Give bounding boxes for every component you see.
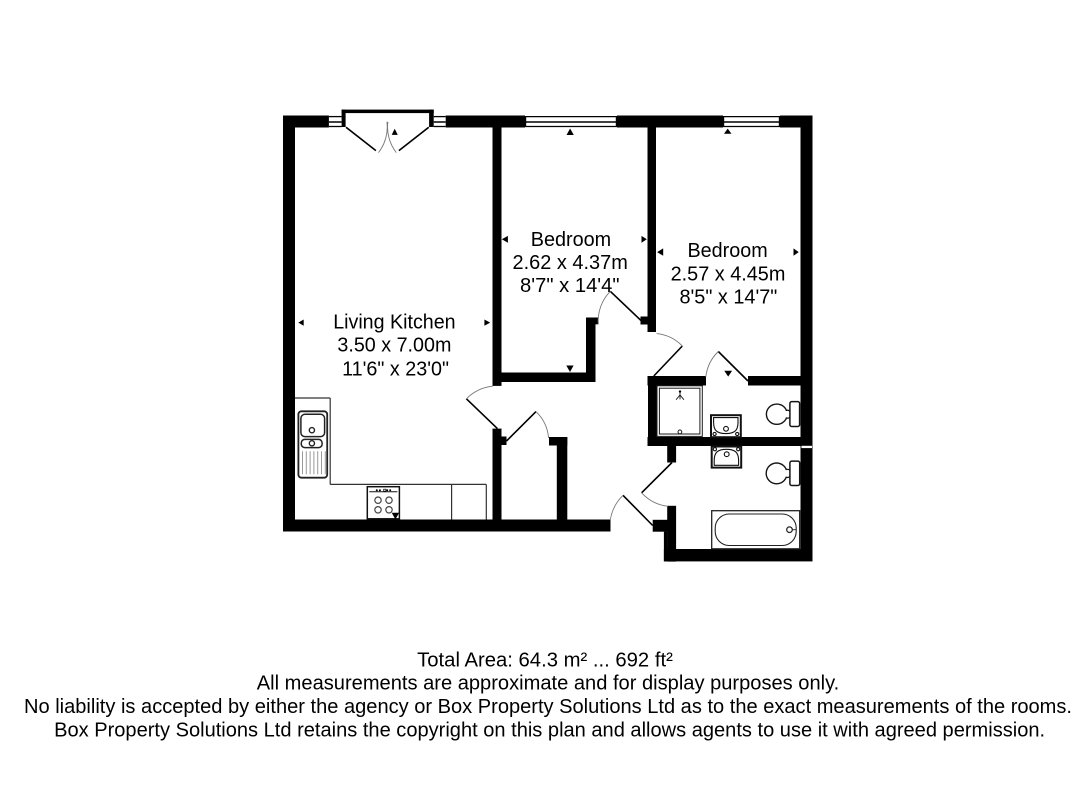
svg-text:3.50 x 7.00m: 3.50 x 7.00m [337,334,451,357]
svg-text:Box Property Solutions Ltd ret: Box Property Solutions Ltd retains the c… [54,718,1045,741]
svg-text:11'6" x 23'0": 11'6" x 23'0" [342,357,449,380]
svg-text:2.62 x 4.37m: 2.62 x 4.37m [513,251,628,274]
svg-text:Living Kitchen: Living Kitchen [333,311,455,334]
svg-text:8'5" x 14'7": 8'5" x 14'7" [679,285,777,308]
svg-text:All measurements are approxima: All measurements are approximate and for… [257,672,840,695]
svg-text:8'7" x 14'4": 8'7" x 14'4" [520,274,620,297]
svg-text:Bedroom: Bedroom [688,239,768,262]
svg-text:2.57 x 4.45m: 2.57 x 4.45m [671,262,786,285]
svg-text:Total Area: 64.3 m² ... 692 ft: Total Area: 64.3 m² ... 692 ft² [417,648,673,671]
svg-text:No liability is accepted by ei: No liability is accepted by either the a… [24,695,1072,718]
svg-text:Bedroom: Bedroom [531,228,611,251]
